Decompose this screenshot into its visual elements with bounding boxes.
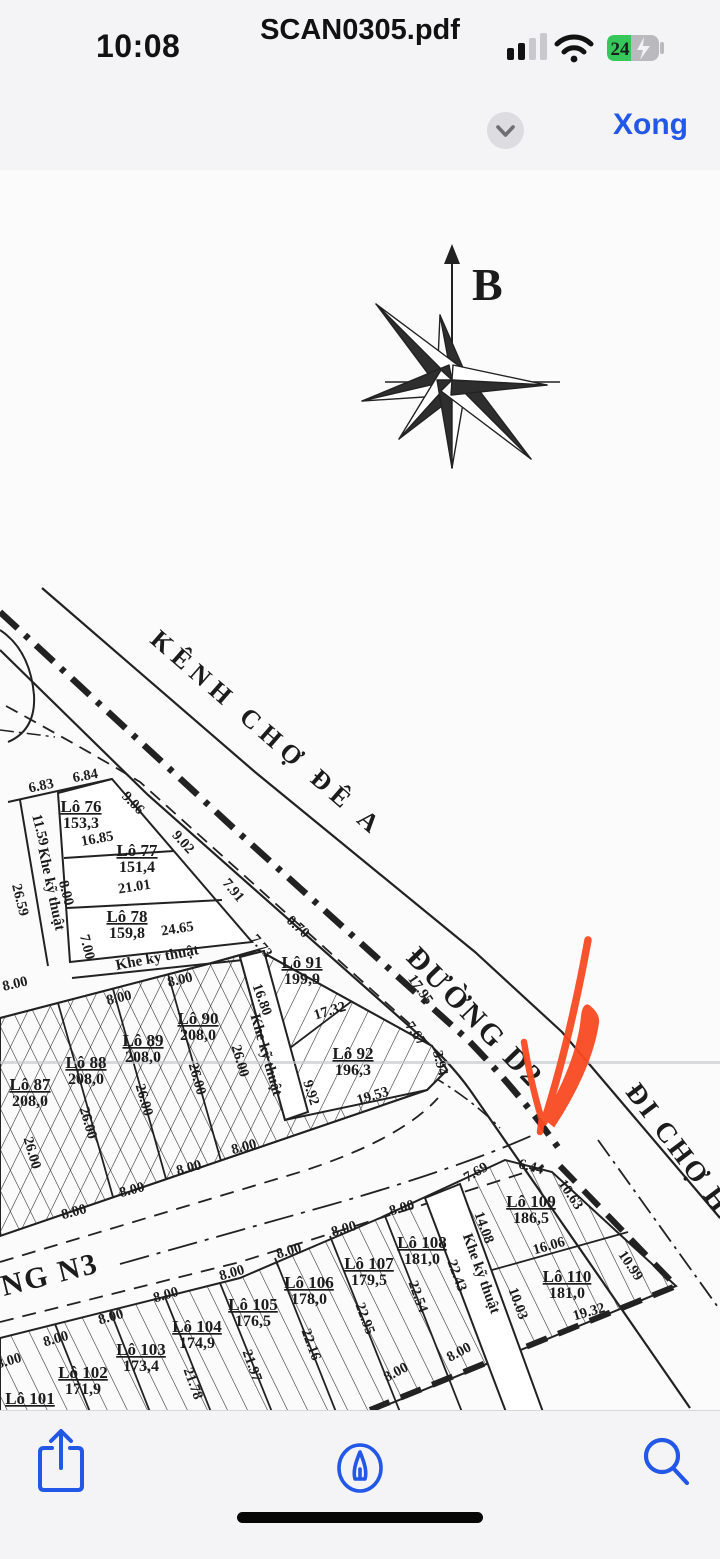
search-button[interactable] — [638, 1432, 694, 1494]
markup-pen-icon — [339, 1445, 381, 1491]
plot-area-label: 181,0 — [404, 1251, 440, 1268]
title-menu-button[interactable] — [487, 112, 524, 149]
plot-area-label: 171,9 — [65, 1381, 101, 1398]
road-labels: KÊNH CHỢ ĐÊ AĐƯỜNG D2ĐI CHỢ HANG N3 — [0, 624, 720, 1302]
plot-number-label: Lô 106 — [284, 1273, 334, 1292]
plot-number-label: Lô 103 — [116, 1340, 166, 1359]
plot-number-label: Lô 110 — [543, 1267, 592, 1286]
pdf-viewer-screen: 10:08 24 SCAN0305.pdf — [0, 0, 720, 1559]
plot-number-label: Lô 88 — [65, 1053, 106, 1072]
road-name-label: ĐI CHỢ HA — [619, 1078, 720, 1239]
cadastral-map: B KÊNH CHỢ ĐÊ AĐƯỜNG D2ĐI CHỢ HANG N3 Lô… — [0, 170, 720, 1410]
plot-area-label: 186,5 — [513, 1210, 549, 1227]
plot-number-label: Lô 91 — [281, 953, 322, 972]
plot-area-label: 199,9 — [284, 971, 320, 988]
red-arrow-annotation — [524, 940, 598, 1132]
plot-area-label: 176,5 — [235, 1313, 271, 1330]
search-icon — [646, 1440, 687, 1483]
chevron-down-icon — [487, 112, 524, 149]
plot-number-label: Lô 92 — [332, 1044, 373, 1063]
plot-number-label: Lô 77 — [116, 841, 158, 860]
dimension-label: 11.59 — [28, 813, 51, 848]
plot-number-label: Lô 87 — [9, 1075, 51, 1094]
plot-number-label: Lô 101 — [5, 1389, 55, 1408]
markup-button[interactable] — [334, 1442, 386, 1494]
done-button[interactable]: Xong — [613, 108, 688, 142]
plot-number-label: Lô 89 — [122, 1031, 163, 1050]
plot-number-label: Lô 108 — [397, 1233, 447, 1252]
plot-number-label: Lô 109 — [506, 1192, 556, 1211]
road-name-label: NG N3 — [0, 1247, 102, 1303]
document-title[interactable]: SCAN0305.pdf — [0, 14, 720, 47]
plot-area-label: 196,3 — [335, 1062, 371, 1079]
plot-number-label: Lô 105 — [228, 1295, 278, 1314]
plot-area-label: 208,0 — [125, 1049, 161, 1066]
plot-area-label: 153,3 — [63, 815, 99, 832]
plot-area-label: 208,0 — [12, 1093, 48, 1110]
plot-area-label: 208,0 — [180, 1027, 216, 1044]
plot-number-label: Lô 104 — [172, 1317, 222, 1336]
dimension-label: 8.00 — [1, 973, 29, 994]
plot-area-label: 179,5 — [351, 1272, 387, 1289]
plot-number-label: Lô 76 — [60, 797, 101, 816]
north-label: B — [472, 259, 503, 310]
plot-area-label: 174,9 — [179, 1335, 215, 1352]
compass-rose — [362, 244, 560, 468]
plot-area-label: 173,4 — [123, 1358, 159, 1375]
nav-bar — [0, 95, 720, 171]
home-indicator[interactable] — [237, 1512, 483, 1523]
plot-number-label: Lô 78 — [106, 907, 147, 926]
pdf-page[interactable]: B KÊNH CHỢ ĐÊ AĐƯỜNG D2ĐI CHỢ HANG N3 Lô… — [0, 170, 720, 1410]
plot-number-label: Lô 90 — [177, 1009, 218, 1028]
share-button[interactable] — [32, 1424, 92, 1496]
plot-area-label: 151,4 — [119, 859, 155, 876]
plot-area-label: 159,8 — [109, 925, 145, 942]
plot-area-label: 208,0 — [68, 1071, 104, 1088]
dimension-label: 26.59 — [8, 882, 31, 918]
share-icon — [40, 1431, 82, 1490]
road-name-label: KÊNH CHỢ ĐÊ A — [145, 624, 390, 843]
plot-area-label: 181,0 — [549, 1285, 585, 1302]
plot-number-label: Lô 107 — [344, 1254, 394, 1273]
plot-number-label: Lô 102 — [58, 1363, 108, 1382]
plot-area-label: 178,0 — [291, 1291, 327, 1308]
